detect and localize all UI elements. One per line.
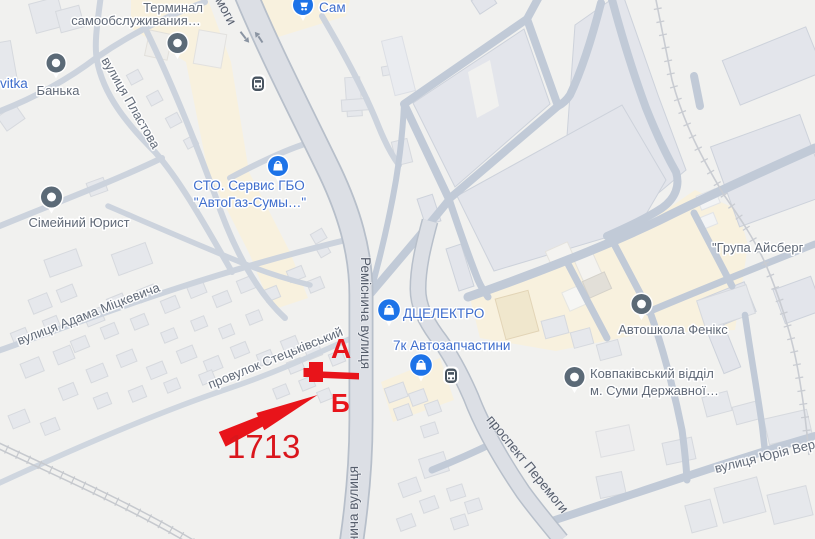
svg-text:Сімейний Юрист: Сімейний Юрист [28, 215, 129, 230]
svg-text:1713: 1713 [227, 428, 300, 465]
svg-text:7к Автозапчастини: 7к Автозапчастини [393, 338, 510, 353]
svg-text:Сам: Сам [319, 0, 346, 15]
svg-text:Б: Б [331, 388, 350, 418]
svg-text:СТО. Сервис ГБО: СТО. Сервис ГБО [193, 178, 304, 193]
svg-text:м. Суми Державної…: м. Суми Державної… [590, 383, 719, 398]
svg-text:"АвтоГаз-Сумы…": "АвтоГаз-Сумы…" [194, 195, 307, 210]
svg-text:Реміснича вулиця: Реміснича вулиця [346, 466, 361, 539]
svg-text:Ковпаківський відділ: Ковпаківський відділ [590, 366, 714, 381]
svg-text:vitka: vitka [0, 76, 28, 91]
svg-text:"Група Айсберг: "Група Айсберг [712, 240, 804, 255]
svg-text:Автошкола Фенікс: Автошкола Фенікс [618, 322, 728, 337]
svg-text:Банька: Банька [37, 83, 81, 98]
svg-text:А: А [331, 333, 351, 364]
svg-text:самообслуживания…: самообслуживания… [71, 13, 201, 28]
svg-text:Реміснича вулиця: Реміснича вулиця [358, 257, 373, 369]
svg-text:ДЦЕЛЕКТРО: ДЦЕЛЕКТРО [403, 306, 484, 321]
